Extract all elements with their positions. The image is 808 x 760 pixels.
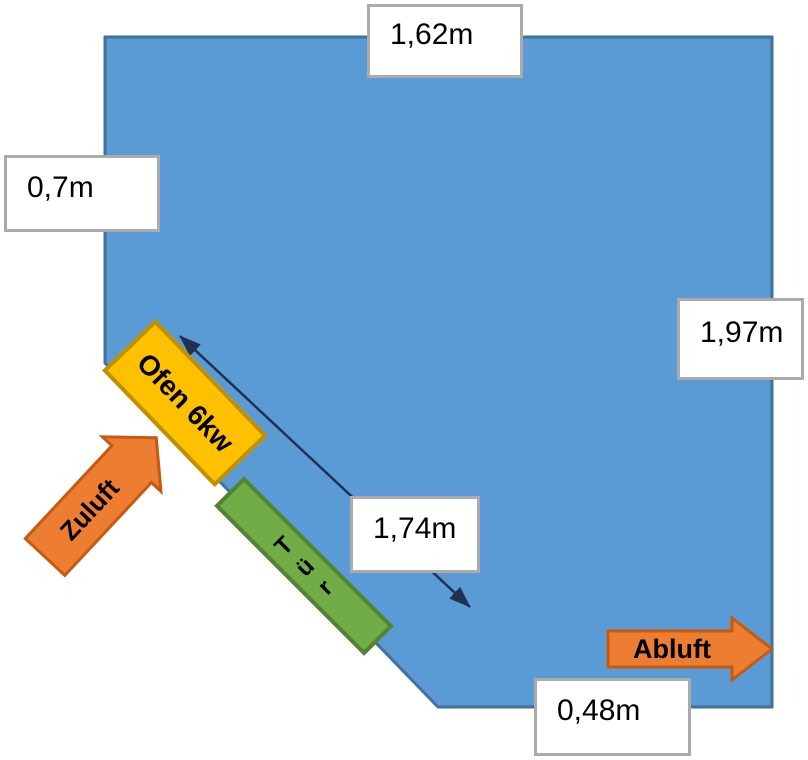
dimension-value: 0,7m	[27, 173, 94, 203]
abluft-label: Abluft	[607, 610, 737, 688]
dimension-value: 0,48m	[557, 696, 640, 726]
door-letter: r	[314, 576, 338, 600]
dimension-label-right: 1,97m	[677, 298, 804, 380]
abluft-arrow: Abluft	[607, 610, 774, 688]
dimension-label-bottom: 0,48m	[534, 678, 691, 756]
dimension-value: 1,97m	[700, 318, 783, 348]
dimension-value: 1,74m	[373, 514, 456, 544]
dimension-label-top: 1,62m	[367, 4, 523, 78]
floor-plan-diagram: Ofen 6kw T ü r Zuluft Abluft 1,62m 0,7m …	[0, 0, 808, 760]
dimension-label-left: 0,7m	[4, 155, 160, 232]
dimension-value: 1,62m	[390, 20, 473, 50]
door-letter: T	[271, 533, 298, 560]
dimension-label-diagonal: 1,74m	[350, 496, 480, 573]
